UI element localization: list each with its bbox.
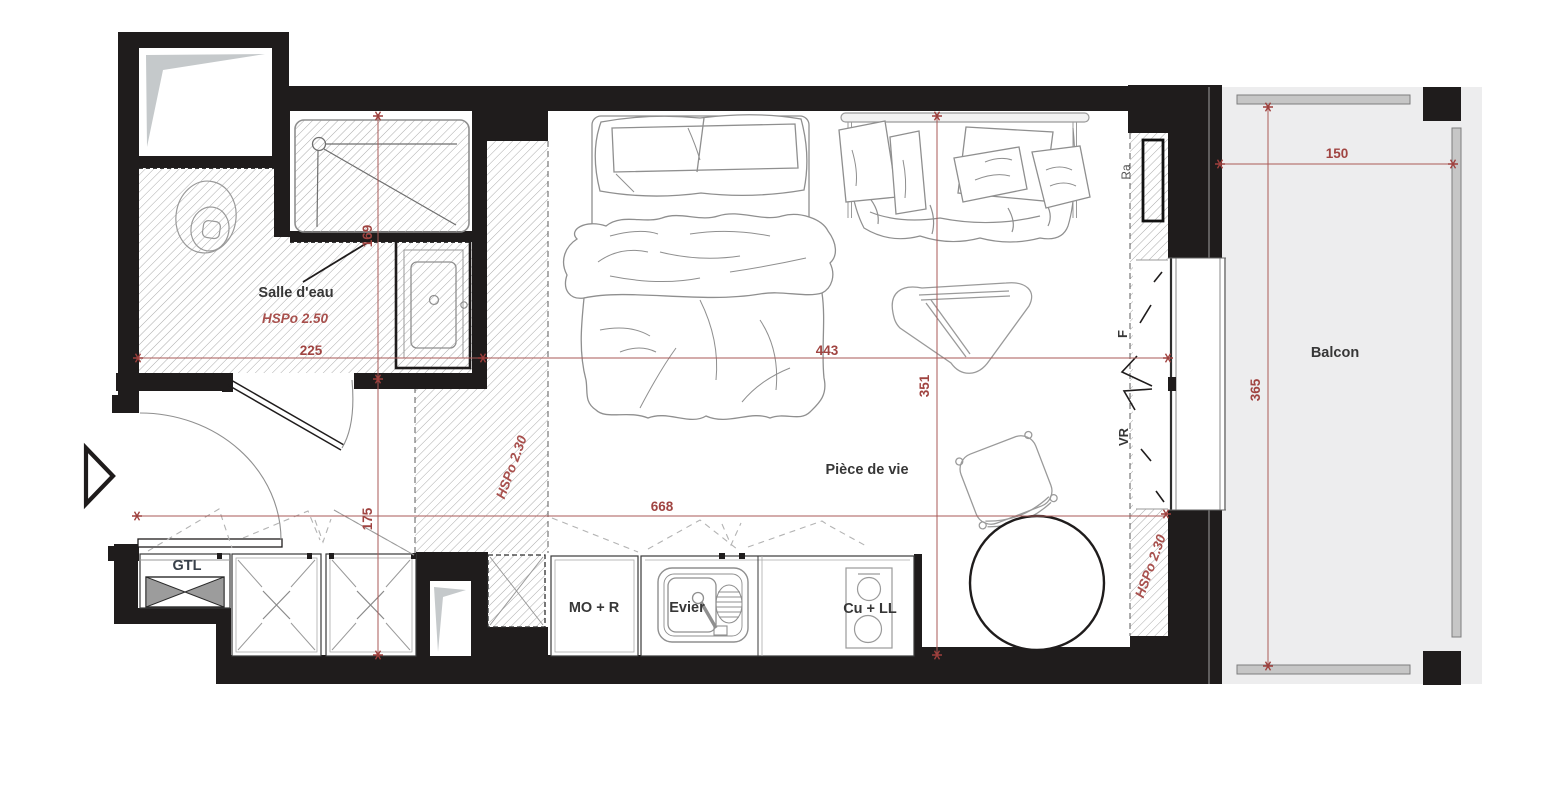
svg-text:F: F (1115, 330, 1130, 338)
svg-text:HSPo 2.50: HSPo 2.50 (262, 311, 329, 326)
svg-text:Ra: Ra (1119, 164, 1133, 180)
svg-text:MO + R: MO + R (569, 600, 620, 616)
svg-text:Pièce de vie: Pièce de vie (825, 462, 908, 478)
svg-text:Evier: Evier (669, 600, 705, 616)
svg-text:365: 365 (1248, 378, 1263, 401)
svg-text:175: 175 (360, 507, 375, 530)
svg-text:GTL: GTL (173, 558, 202, 574)
svg-text:169: 169 (360, 225, 375, 248)
svg-text:Balcon: Balcon (1311, 345, 1359, 361)
svg-text:225: 225 (300, 343, 323, 358)
svg-text:Salle d'eau: Salle d'eau (258, 285, 333, 301)
svg-text:351: 351 (917, 374, 932, 397)
svg-text:668: 668 (651, 499, 674, 514)
svg-text:443: 443 (816, 343, 839, 358)
svg-text:150: 150 (1326, 146, 1349, 161)
svg-text:VR: VR (1116, 427, 1131, 446)
svg-text:Cu + LL: Cu + LL (843, 601, 897, 617)
